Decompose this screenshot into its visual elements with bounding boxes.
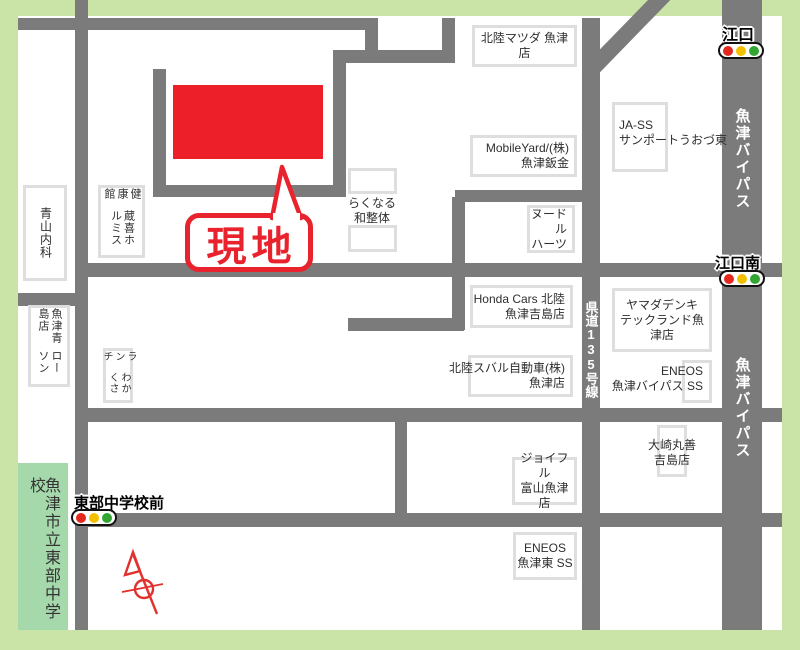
- label-noodle-line2: ハーツ: [531, 237, 567, 251]
- signal-red-light: [723, 46, 733, 56]
- signal-green-light: [749, 46, 759, 56]
- signal-icon-tobu-chugakko-mae: [71, 509, 117, 526]
- label-lawson-col1: ローソン: [36, 350, 62, 384]
- building-rakunaru-upper: [348, 168, 397, 194]
- label-yamada-denki: ヤマダデンキ テックランド魚津店: [612, 288, 712, 352]
- location-map: 魚津市立東部中学校 県道135号線 魚津バイパス 魚津バイパス 青山内科 蔵喜ホ…: [0, 0, 800, 650]
- label-eneos-east-line1: ENEOS: [524, 541, 566, 555]
- road-mid-horizontal-east-stub: [762, 263, 782, 277]
- label-yamada-line2: テックランド魚津店: [620, 313, 704, 342]
- label-eneos-bypass-line2: 魚津バイパス SS: [612, 379, 703, 393]
- road-west-vertical: [75, 0, 88, 630]
- label-hokuriku-mazda: 北陸マツダ 魚津店: [472, 25, 577, 67]
- label-kurayoshi-col1: 蔵喜ホルミス: [102, 210, 141, 255]
- road-uozu-bypass: [722, 0, 762, 630]
- label-rakunaru: らくなる 和整体: [340, 196, 404, 226]
- label-noodle-line1: ヌードル: [531, 207, 567, 236]
- label-eneos-east: ENEOS 魚津東 SS: [513, 532, 577, 580]
- label-rakunaru-line2: 和整体: [354, 211, 390, 225]
- label-lawson-col2: 魚津青島店: [36, 308, 62, 350]
- signal-yellow-light: [736, 46, 746, 56]
- label-joyfull-line1: ジョイフル: [520, 451, 568, 480]
- site-callout-pointer: [260, 160, 320, 224]
- road-joyfull-west-vertical: [395, 415, 407, 527]
- road-u-left-vertical: [365, 28, 378, 58]
- signal-yellow-light: [737, 274, 747, 284]
- label-osaki: 大崎丸善 吉島店: [642, 438, 702, 468]
- label-noodle-hearts: ヌードル ハーツ: [527, 205, 575, 253]
- road-label-bypass-upper: 魚津バイパス: [722, 103, 762, 215]
- signal-icon-eguchi-minami: [719, 270, 765, 287]
- label-rakunaru-line1: らくなる: [348, 196, 396, 210]
- label-eneos-east-line2: 魚津東 SS: [517, 556, 572, 570]
- label-osaki-line1: 大崎丸善: [648, 438, 696, 452]
- map-border-top: [0, 0, 800, 16]
- road-lower-horizontal-east-stub: [762, 408, 782, 422]
- label-hokuriku-mazda-text: 北陸マツダ 魚津店: [475, 31, 574, 61]
- signal-red-light: [724, 274, 734, 284]
- label-osaki-line2: 吉島店: [654, 453, 690, 467]
- label-subaru-line1: 北陸スバル自動車(株): [449, 361, 565, 375]
- label-jass-line2: サンポートうおづ東: [619, 133, 727, 147]
- label-wakakusa-lunch: わかくさ ランチ: [103, 348, 133, 403]
- label-aoyama-naika: 青山内科: [23, 185, 67, 281]
- road-mobileyard-south: [455, 190, 595, 202]
- signal-icon-eguchi: [718, 42, 764, 59]
- label-honda-line1: Honda Cars 北陸: [474, 292, 565, 306]
- label-honda-line2: 魚津吉島店: [505, 307, 565, 321]
- signal-green-light: [102, 513, 112, 523]
- label-lawson: ローソン 魚津青島店: [28, 305, 70, 387]
- label-yamada-line1: ヤマダデンキ: [626, 298, 698, 312]
- road-mid-horizontal: [82, 263, 722, 277]
- building-rakunaru-lower: [348, 225, 397, 252]
- road-site-west-vertical: [153, 69, 166, 197]
- label-mobileyard-line1: MobileYard/(株): [486, 141, 569, 155]
- label-honda-cars: Honda Cars 北陸 魚津吉島店: [470, 285, 573, 328]
- map-border-left: [0, 0, 18, 650]
- label-subaru-line2: 魚津店: [529, 376, 565, 390]
- signal-yellow-light: [89, 513, 99, 523]
- label-eneos-bypass-line1: ENEOS: [661, 364, 703, 378]
- map-border-right: [782, 0, 800, 650]
- label-joyfull-line2: 富山魚津店: [520, 481, 568, 510]
- road-hanging-stub: [348, 318, 464, 331]
- signal-red-light: [76, 513, 86, 523]
- label-wakakusa-col2: ランチ: [100, 351, 136, 372]
- label-jass-line1: JA-SS: [619, 118, 653, 132]
- road-label-bypass-lower: 魚津バイパス: [722, 352, 762, 464]
- label-mobileyard-line2: 魚津鈑金: [521, 156, 569, 170]
- road-u-horizontal: [333, 50, 455, 63]
- label-kurayoshi-horumisu: 蔵喜ホルミス 健康館: [98, 185, 145, 258]
- label-subaru: 北陸スバル自動車(株) 魚津店: [468, 355, 573, 397]
- signal-green-light: [750, 274, 760, 284]
- label-kurayoshi-col2: 健康館: [102, 188, 141, 210]
- label-joyfull: ジョイフル 富山魚津店: [512, 457, 577, 505]
- road-top: [18, 18, 378, 30]
- site-parcel: [173, 85, 323, 159]
- label-aoyama-naika-text: 青山内科: [38, 207, 53, 259]
- road-school-front-east-stub: [762, 513, 782, 527]
- road-site-east-vertical: [333, 52, 346, 197]
- road-u-right-vertical: [442, 18, 455, 63]
- north-compass-icon: [110, 540, 180, 625]
- label-eneos-bypass: ENEOS 魚津バイパス SS: [563, 364, 703, 394]
- school-area: 魚津市立東部中学校: [18, 463, 68, 630]
- map-border-bottom: [0, 630, 800, 650]
- label-wakakusa-col1: わかくさ: [100, 372, 136, 400]
- school-area-label: 魚津市立東部中学校: [28, 477, 58, 630]
- label-mobileyard: MobileYard/(株) 魚津鈑金: [470, 135, 577, 177]
- label-jass: JA-SS サンポートうおづ東: [619, 118, 727, 148]
